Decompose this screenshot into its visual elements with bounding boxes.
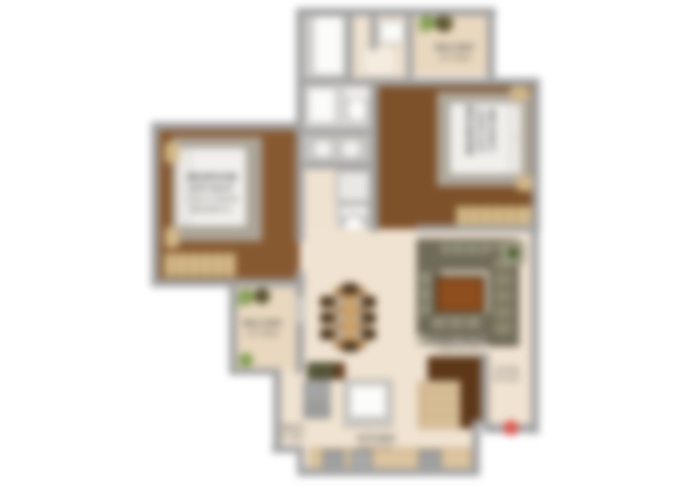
svg-text:4'0" WIDE: 4'0" WIDE: [247, 331, 279, 338]
svg-text:5'0"X4'0": 5'0"X4'0": [493, 376, 521, 383]
svg-text:BEDROOM: BEDROOM: [465, 105, 476, 155]
svg-text:BALCONY: BALCONY: [435, 43, 475, 52]
svg-text:11'0"X10'0": 11'0"X10'0": [476, 107, 486, 153]
svg-text:WOODEN FL.: WOODEN FL.: [190, 207, 234, 214]
svg-text:KITCHEN: KITCHEN: [357, 433, 395, 443]
svg-text:10'6"X11'6": 10'6"X11'6": [189, 183, 235, 193]
svg-text:BALCONY: BALCONY: [243, 319, 283, 328]
svg-text:3.35X3.05M: 3.35X3.05M: [488, 108, 497, 151]
svg-text:FOYER: FOYER: [495, 367, 519, 374]
svg-text:BEDROOM: BEDROOM: [187, 172, 237, 183]
svg-text:UTILITY: UTILITY: [278, 423, 306, 432]
svg-text:3.20 X 3.50 M: 3.20 X 3.50 M: [187, 195, 237, 204]
svg-text:4'0" WIDE: 4'0" WIDE: [439, 55, 471, 62]
